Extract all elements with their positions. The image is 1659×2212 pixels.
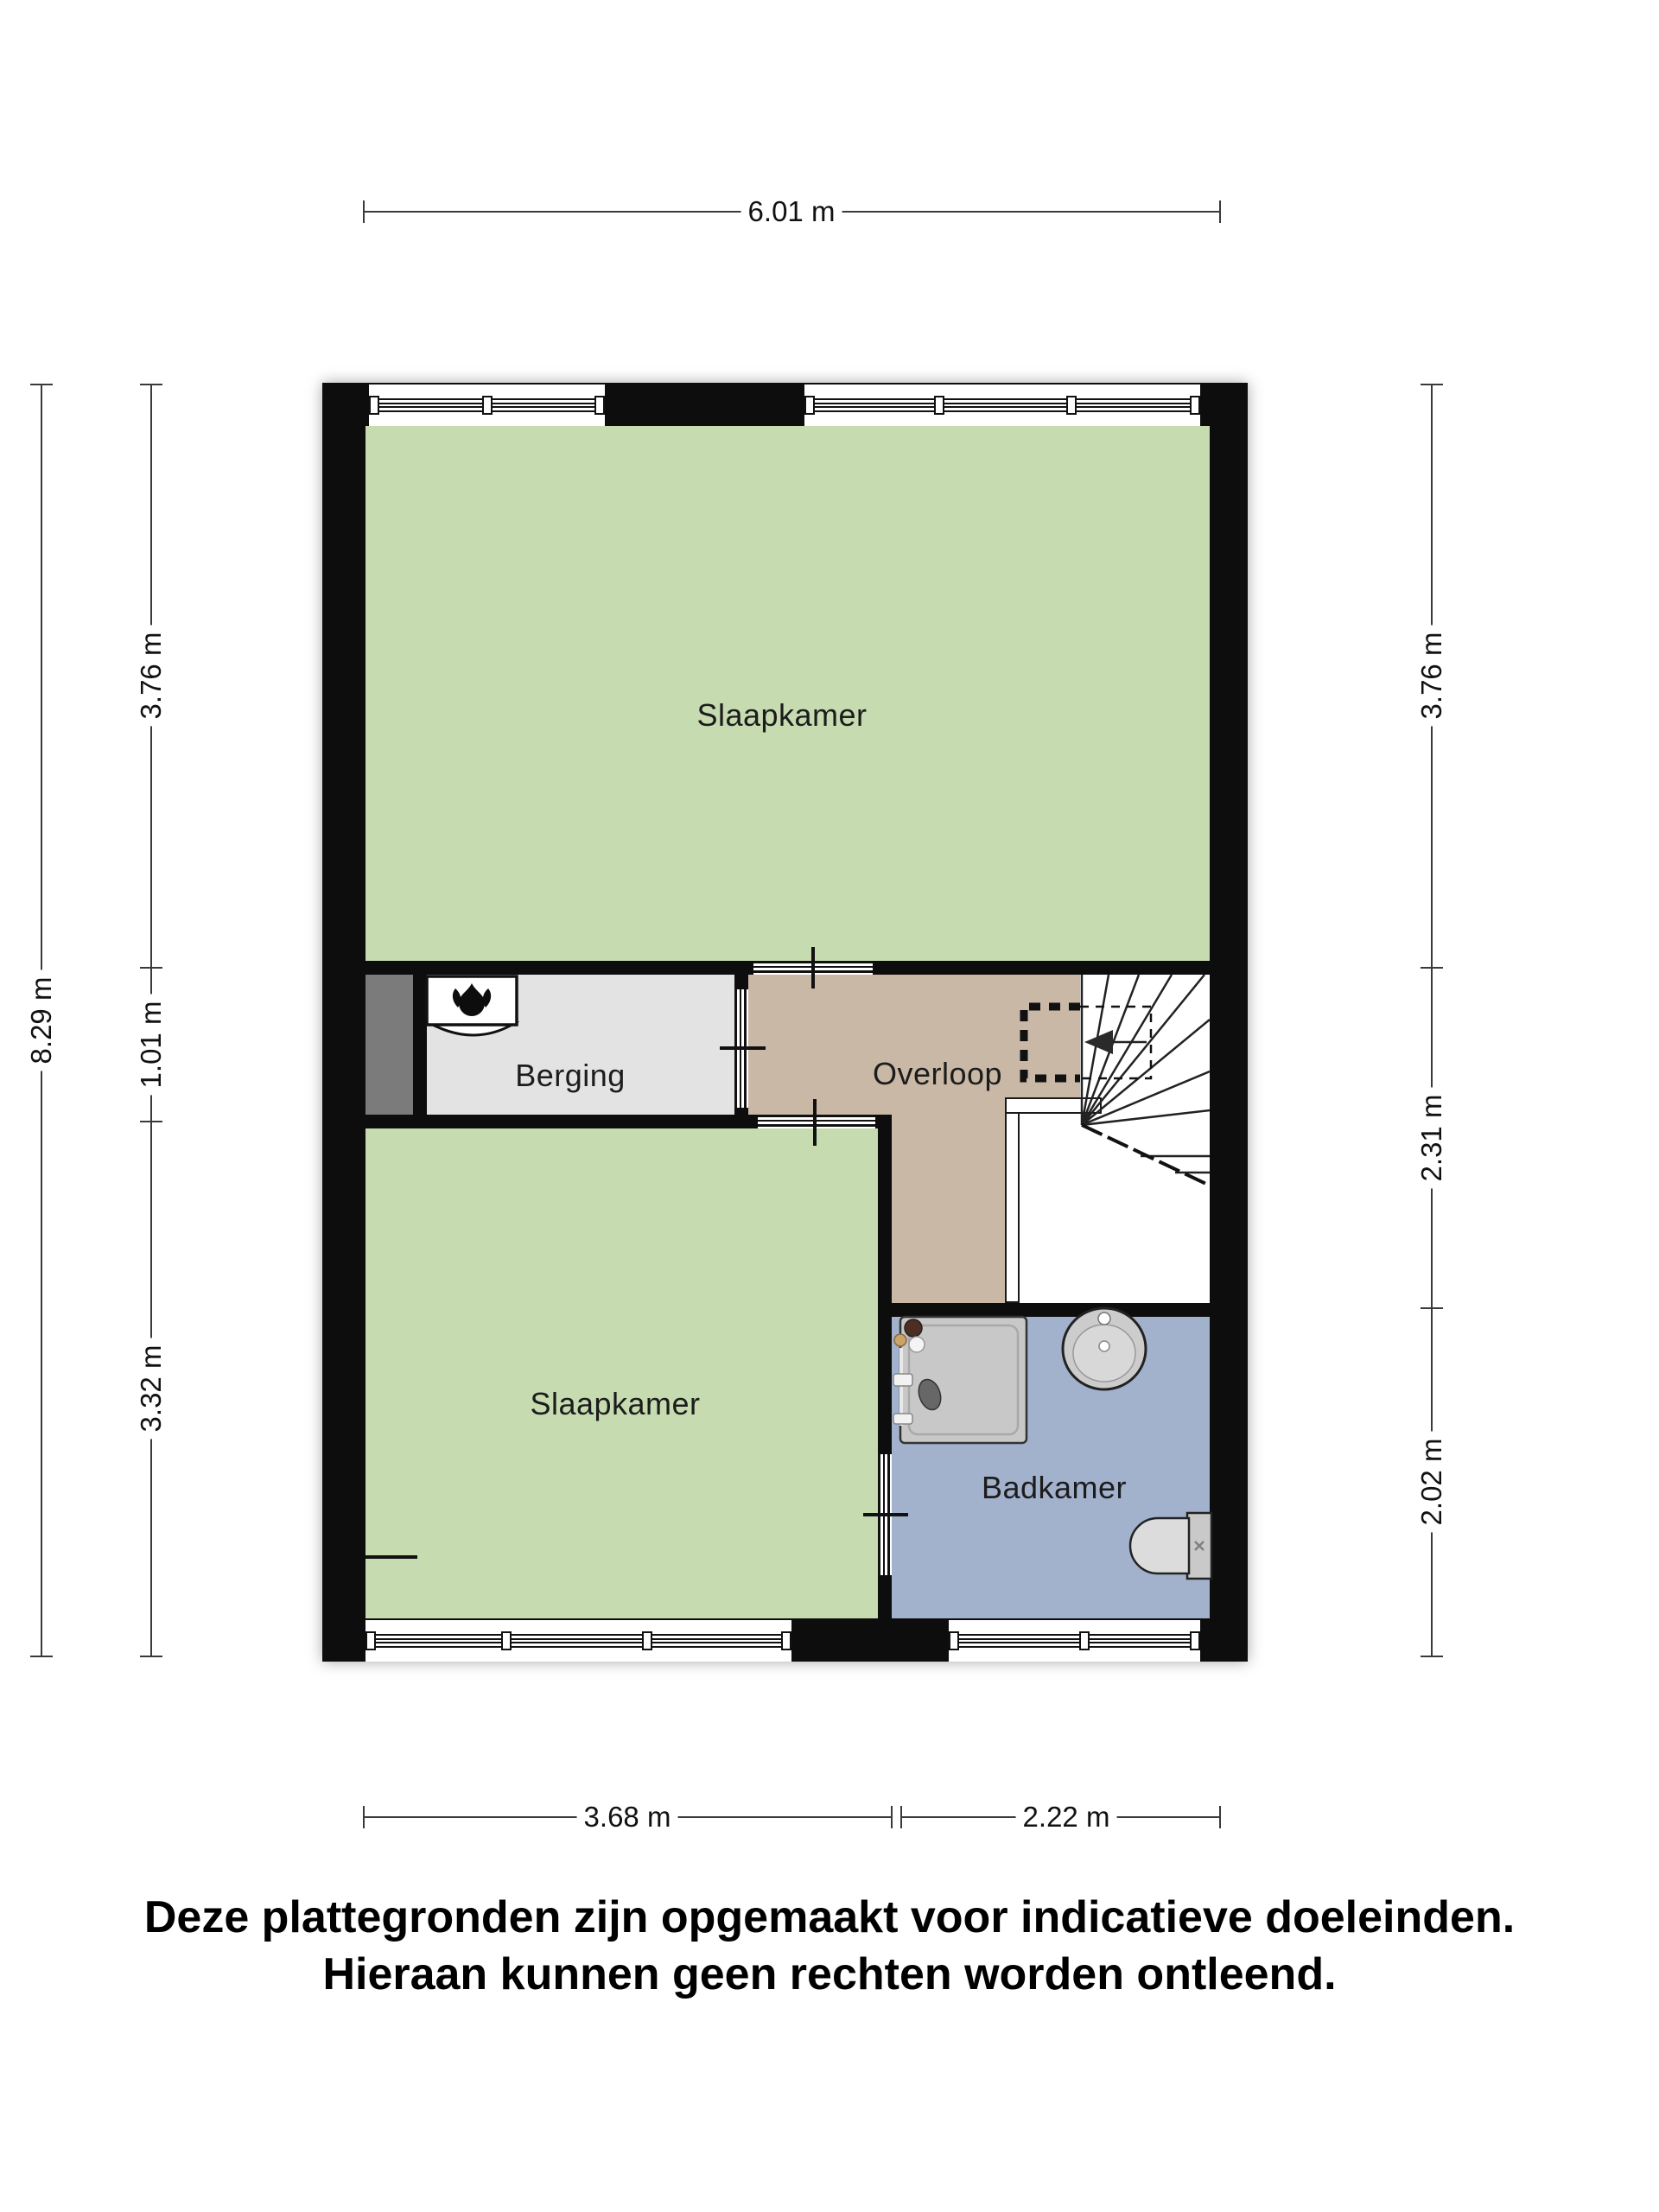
dimension-left-2: 1.01 m: [134, 995, 168, 1096]
dimension-bottom-1: 3.68 m: [577, 1800, 678, 1834]
dimension-right-1: 3.76 m: [1414, 626, 1449, 727]
boiler-unit: [427, 976, 517, 1035]
room-label-badkamer: Badkamer: [982, 1470, 1127, 1506]
dimension-left-3: 3.32 m: [134, 1338, 168, 1440]
sink-icon: [1063, 1308, 1146, 1389]
disclaimer-line-1: Deze plattegronden zijn opgemaakt voor i…: [0, 1889, 1659, 1946]
shower-icon: [893, 1317, 1027, 1443]
door-ticks: [365, 947, 908, 1557]
dimension-bottom-2: 2.22 m: [1016, 1800, 1117, 1834]
stairs-treads-icon: [1082, 975, 1210, 1173]
toilet-icon: [1130, 1513, 1211, 1579]
dimension-height-left-total: 8.29 m: [24, 970, 59, 1071]
dimension-right-2: 2.31 m: [1414, 1088, 1449, 1189]
dimension-lines: [30, 200, 1443, 1828]
dimension-right-3: 2.02 m: [1414, 1432, 1449, 1533]
dimension-width-top: 6.01 m: [741, 194, 842, 229]
room-label-berging: Berging: [515, 1058, 626, 1094]
plan-linework: [0, 0, 1659, 2212]
dimension-left-1: 3.76 m: [134, 626, 168, 727]
room-label-slaapkamer-bottom: Slaapkamer: [530, 1386, 700, 1422]
disclaimer: Deze plattegronden zijn opgemaakt voor i…: [0, 1889, 1659, 2003]
disclaimer-line-2: Hieraan kunnen geen rechten worden ontle…: [0, 1946, 1659, 2003]
room-label-overloop: Overloop: [873, 1056, 1002, 1092]
floor-plan-page: Slaapkamer Berging Overloop Slaapkamer B…: [0, 0, 1659, 2212]
room-label-slaapkamer-top: Slaapkamer: [696, 697, 867, 734]
